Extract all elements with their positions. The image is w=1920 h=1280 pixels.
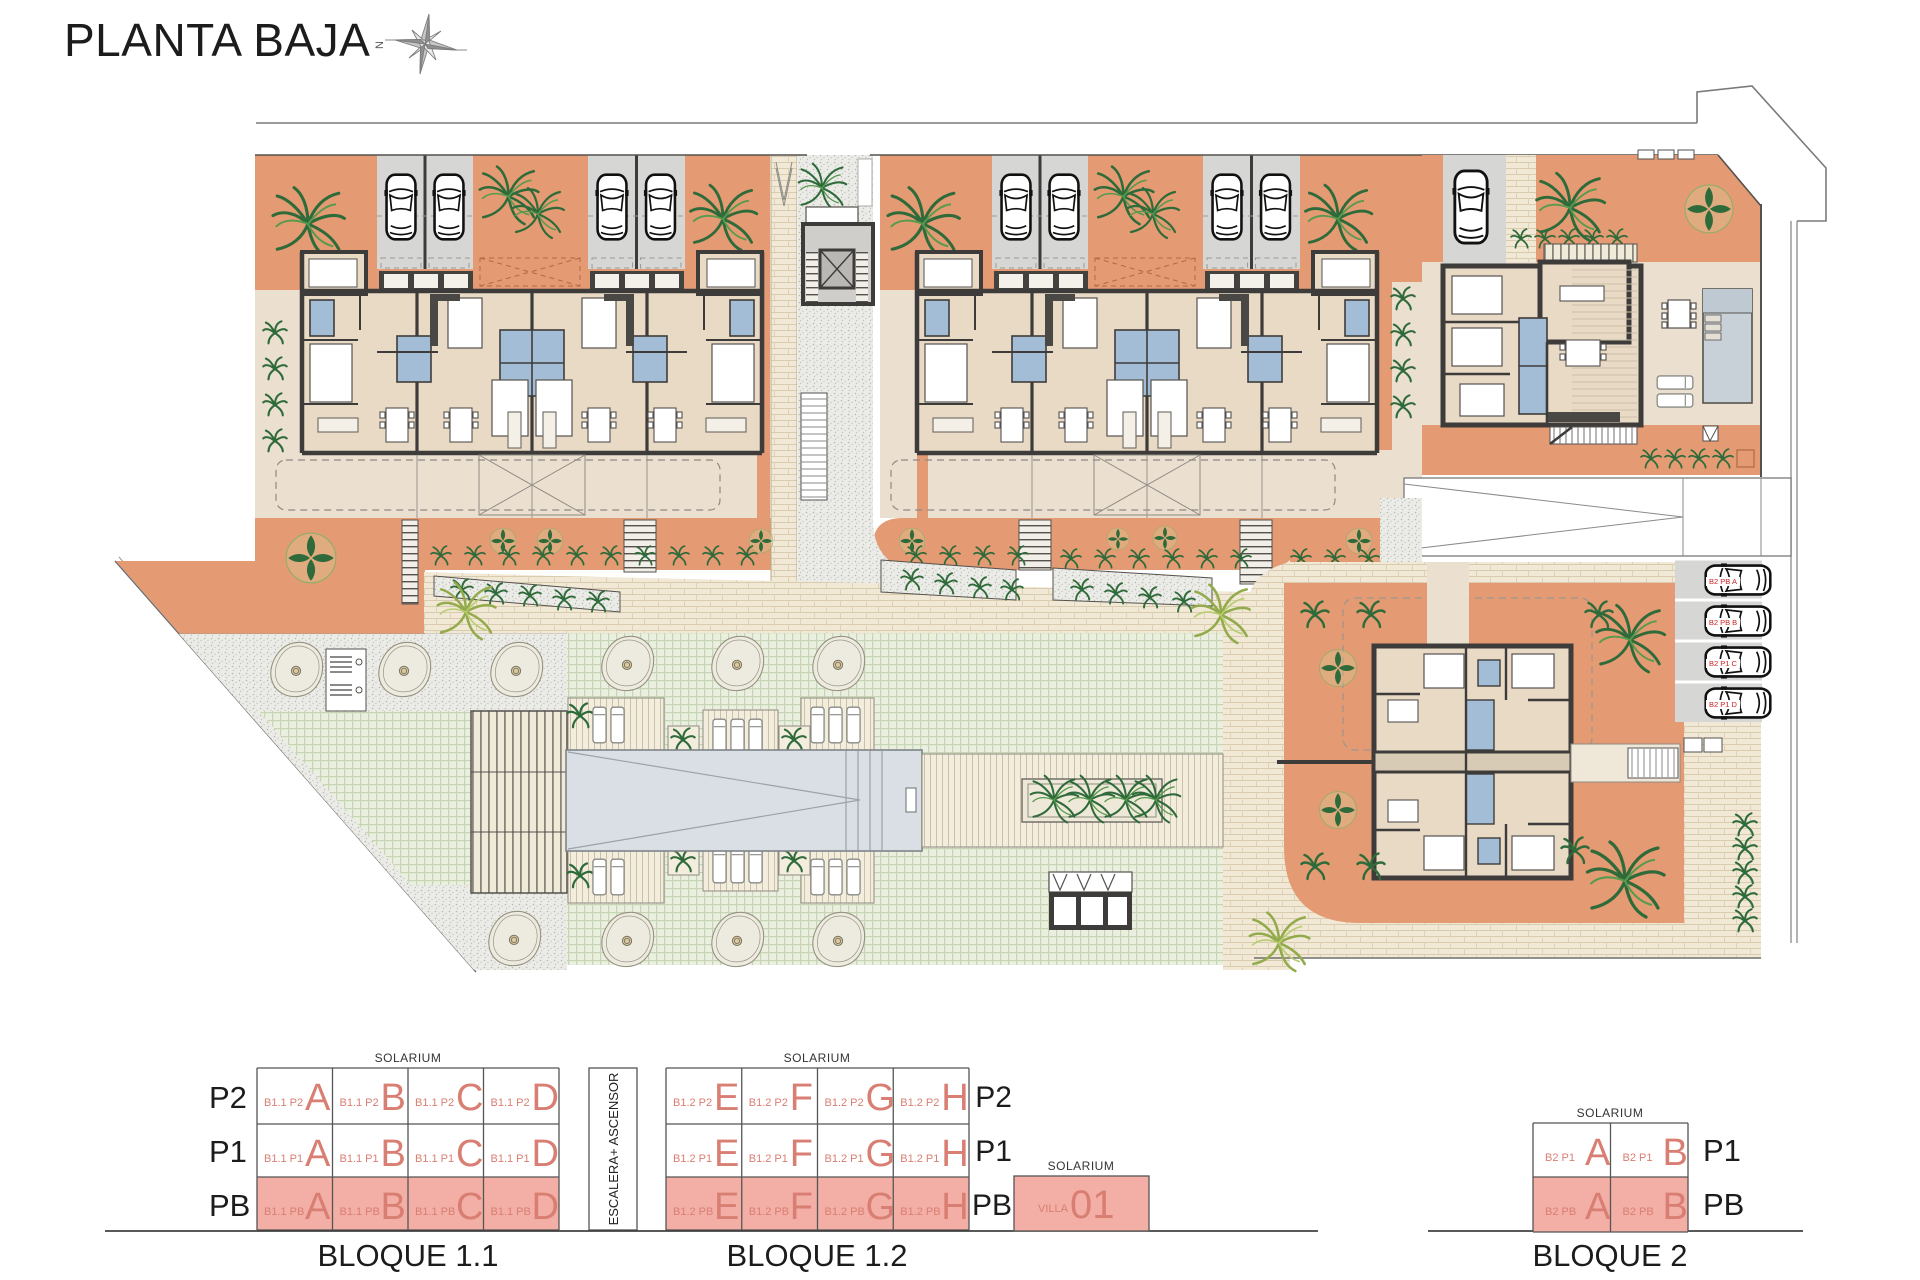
- svg-text:B1.2 P1: B1.2 P1: [749, 1153, 788, 1165]
- svg-text:01: 01: [1070, 1183, 1115, 1227]
- svg-text:D: D: [532, 1133, 559, 1175]
- svg-text:C: C: [456, 1133, 483, 1175]
- svg-text:PLANTA BAJA: PLANTA BAJA: [64, 14, 370, 66]
- svg-text:B2 PB A: B2 PB A: [1709, 577, 1737, 586]
- svg-text:G: G: [866, 1133, 896, 1175]
- svg-text:H: H: [941, 1186, 968, 1228]
- svg-text:G: G: [866, 1077, 896, 1119]
- svg-text:F: F: [790, 1077, 813, 1119]
- svg-text:B2 P1 D: B2 P1 D: [1709, 700, 1738, 709]
- svg-text:E: E: [714, 1186, 739, 1228]
- svg-text:P1: P1: [975, 1135, 1012, 1168]
- svg-text:B1.2 PB: B1.2 PB: [749, 1206, 789, 1218]
- svg-text:A: A: [1585, 1186, 1611, 1228]
- svg-text:P2: P2: [209, 1080, 247, 1115]
- svg-text:B1.1 P1: B1.1 P1: [340, 1153, 379, 1165]
- svg-text:B: B: [381, 1133, 406, 1175]
- svg-text:B1.1 P1: B1.1 P1: [264, 1153, 303, 1165]
- svg-text:B2 P1: B2 P1: [1545, 1152, 1575, 1164]
- svg-text:SOLARIUM: SOLARIUM: [1048, 1159, 1115, 1173]
- svg-text:B1.1 P1: B1.1 P1: [415, 1153, 454, 1165]
- svg-text:C: C: [456, 1186, 483, 1228]
- svg-text:B1.2 P2: B1.2 P2: [673, 1097, 712, 1109]
- svg-text:E: E: [714, 1077, 739, 1119]
- svg-text:B1.1 P1: B1.1 P1: [491, 1153, 530, 1165]
- svg-text:B1.2 PB: B1.2 PB: [825, 1206, 865, 1218]
- svg-text:B1.1 P2: B1.1 P2: [415, 1097, 454, 1109]
- svg-text:BLOQUE 1.2: BLOQUE 1.2: [727, 1238, 908, 1273]
- svg-text:B: B: [381, 1077, 406, 1119]
- svg-text:B1.1 P2: B1.1 P2: [491, 1097, 530, 1109]
- svg-text:ESCALERA+ ASCENSOR: ESCALERA+ ASCENSOR: [606, 1073, 621, 1226]
- svg-text:SOLARIUM: SOLARIUM: [375, 1051, 442, 1065]
- svg-text:B1.1 PB: B1.1 PB: [491, 1206, 531, 1218]
- svg-text:B1.1 PB: B1.1 PB: [415, 1206, 455, 1218]
- svg-text:B1.2 P1: B1.2 P1: [673, 1153, 712, 1165]
- svg-text:G: G: [866, 1186, 896, 1228]
- svg-text:B1.2 P2: B1.2 P2: [900, 1097, 939, 1109]
- svg-text:B2 PB: B2 PB: [1545, 1206, 1576, 1218]
- svg-text:B1.2 P2: B1.2 P2: [825, 1097, 864, 1109]
- svg-text:B2 PB: B2 PB: [1623, 1206, 1654, 1218]
- svg-text:BLOQUE 2: BLOQUE 2: [1532, 1238, 1687, 1273]
- svg-text:P1: P1: [1703, 1133, 1741, 1168]
- svg-text:F: F: [790, 1186, 813, 1228]
- svg-text:C: C: [456, 1077, 483, 1119]
- svg-text:A: A: [305, 1077, 331, 1119]
- svg-text:B1.2 PB: B1.2 PB: [900, 1206, 940, 1218]
- svg-text:P2: P2: [975, 1081, 1012, 1114]
- svg-text:H: H: [941, 1133, 968, 1175]
- svg-text:B: B: [381, 1186, 406, 1228]
- svg-text:F: F: [790, 1133, 813, 1175]
- svg-text:N: N: [374, 41, 386, 49]
- svg-text:E: E: [714, 1133, 739, 1175]
- svg-text:H: H: [941, 1077, 968, 1119]
- svg-text:SOLARIUM: SOLARIUM: [784, 1051, 851, 1065]
- svg-text:B1.1 P2: B1.1 P2: [340, 1097, 379, 1109]
- svg-text:B2 P1 C: B2 P1 C: [1709, 659, 1738, 668]
- svg-text:B1.2 P2: B1.2 P2: [749, 1097, 788, 1109]
- svg-text:B2 P1: B2 P1: [1623, 1152, 1653, 1164]
- svg-text:PB: PB: [1703, 1187, 1744, 1222]
- svg-text:D: D: [532, 1186, 559, 1228]
- svg-text:B1.2 PB: B1.2 PB: [673, 1206, 713, 1218]
- svg-text:D: D: [532, 1077, 559, 1119]
- svg-text:B: B: [1663, 1186, 1688, 1228]
- svg-text:B1.1 PB: B1.1 PB: [340, 1206, 380, 1218]
- svg-text:A: A: [1585, 1132, 1611, 1174]
- svg-text:PB: PB: [972, 1189, 1012, 1222]
- svg-text:A: A: [305, 1133, 331, 1175]
- svg-text:VILLA: VILLA: [1038, 1203, 1069, 1215]
- svg-text:PB: PB: [209, 1188, 250, 1223]
- svg-text:B2 PB B: B2 PB B: [1709, 618, 1737, 627]
- svg-text:B: B: [1663, 1132, 1688, 1174]
- svg-text:B1.2 P1: B1.2 P1: [825, 1153, 864, 1165]
- svg-text:SOLARIUM: SOLARIUM: [1577, 1106, 1644, 1120]
- svg-text:P1: P1: [209, 1134, 247, 1169]
- svg-text:A: A: [305, 1186, 331, 1228]
- svg-text:B1.2 P1: B1.2 P1: [900, 1153, 939, 1165]
- svg-text:B1.1 PB: B1.1 PB: [264, 1206, 304, 1218]
- svg-text:B1.1 P2: B1.1 P2: [264, 1097, 303, 1109]
- svg-text:BLOQUE 1.1: BLOQUE 1.1: [318, 1238, 499, 1273]
